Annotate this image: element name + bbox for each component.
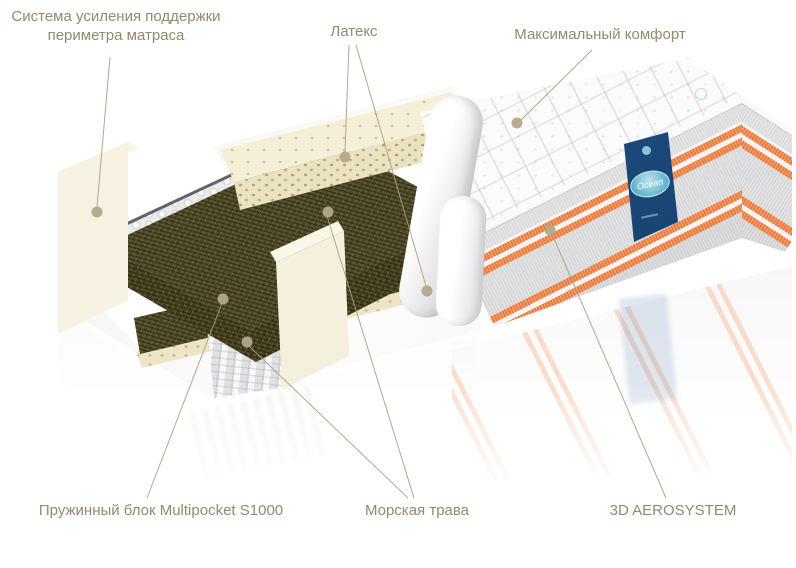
callout-label-aerosystem: 3D AEROSYSTEM xyxy=(598,502,748,521)
mattress-diagram: Ocean Система усиления поддержки перимет… xyxy=(0,0,796,568)
callout-label-spring-block: Пружинный блок Multipocket S1000 xyxy=(28,502,294,521)
callout-label-latex: Латекс xyxy=(316,23,392,42)
callout-lines xyxy=(0,0,796,568)
callout-label-perimeter-support: Система усиления поддержки периметра мат… xyxy=(8,8,224,46)
callout-label-max-comfort: Максимальный комфорт xyxy=(498,26,702,45)
callout-label-sea-grass: Морская трава xyxy=(352,502,482,521)
